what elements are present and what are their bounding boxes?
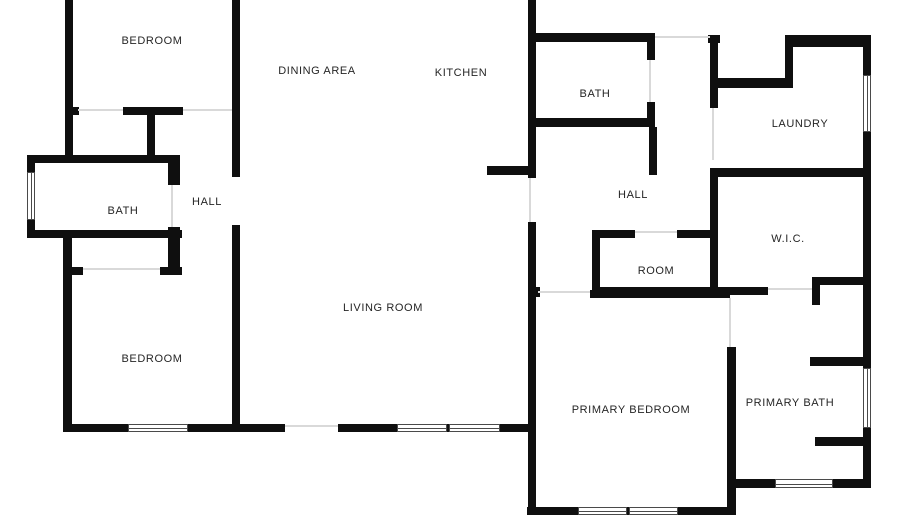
door-opening xyxy=(649,60,651,102)
wall-segment xyxy=(647,33,655,60)
wall-segment xyxy=(527,507,578,515)
room-label-living-room: LIVING ROOM xyxy=(343,302,423,314)
wall-segment xyxy=(810,357,863,366)
wall-segment xyxy=(168,163,180,185)
door-opening xyxy=(183,109,232,111)
wall-segment xyxy=(528,222,536,515)
room-label-w-i-c: W.I.C. xyxy=(771,233,805,245)
wall-segment xyxy=(833,479,871,488)
wall-segment xyxy=(63,235,72,432)
wall-segment xyxy=(160,267,182,275)
wall-segment xyxy=(528,0,536,178)
wall-segment xyxy=(27,155,180,163)
door-opening xyxy=(529,178,531,222)
wall-segment xyxy=(590,290,730,298)
wall-segment xyxy=(710,168,870,177)
room-label-bedroom: BEDROOM xyxy=(121,35,182,47)
room-label-laundry: LAUNDRY xyxy=(772,118,829,130)
wall-segment xyxy=(65,107,79,115)
wall-segment xyxy=(710,35,718,108)
wall-segment xyxy=(649,127,657,175)
door-opening xyxy=(655,36,710,38)
door-opening xyxy=(729,298,731,347)
room-label-dining-area: DINING AREA xyxy=(278,65,356,77)
room-label-bath: BATH xyxy=(580,88,611,100)
wall-segment xyxy=(338,424,397,432)
room-label-kitchen: KITCHEN xyxy=(435,67,487,79)
wall-segment xyxy=(815,437,871,446)
door-opening xyxy=(538,291,590,293)
wall-segment xyxy=(677,230,712,238)
living-room-window-1 xyxy=(397,424,447,432)
door-opening xyxy=(171,185,173,227)
wall-segment xyxy=(812,277,867,285)
living-room-window-2 xyxy=(449,424,500,432)
wall-segment xyxy=(718,78,793,88)
room-label-hall: HALL xyxy=(618,189,648,201)
door-opening xyxy=(635,231,677,233)
room-label-bath: BATH xyxy=(108,205,139,217)
door-opening xyxy=(768,288,812,290)
wall-segment xyxy=(863,35,871,75)
wall-segment xyxy=(147,107,155,157)
primary-bath-side-window xyxy=(863,368,871,428)
wall-segment xyxy=(727,347,736,515)
wall-segment xyxy=(678,507,736,515)
wall-segment xyxy=(65,0,73,158)
room-label-bedroom: BEDROOM xyxy=(121,353,182,365)
door-opening xyxy=(285,425,338,427)
primary-bedroom-window-1 xyxy=(578,507,627,515)
wall-segment xyxy=(592,230,600,295)
wall-segment xyxy=(232,0,240,177)
wall-segment xyxy=(736,479,775,488)
door-opening xyxy=(78,109,123,111)
room-label-hall: HALL xyxy=(192,196,222,208)
door-opening xyxy=(712,108,714,160)
wall-segment xyxy=(27,230,182,238)
room-label-primary-bedroom: PRIMARY BEDROOM xyxy=(572,404,691,416)
floor-plan-canvas: BEDROOMDINING AREAKITCHENBATHLAUNDRYHALL… xyxy=(0,0,900,529)
wall-segment xyxy=(528,118,655,127)
room-label-room: ROOM xyxy=(638,265,675,277)
wall-segment xyxy=(536,33,655,42)
wall-segment xyxy=(63,424,128,432)
laundry-window xyxy=(863,75,871,132)
wall-segment xyxy=(487,166,536,175)
wall-segment xyxy=(27,163,35,172)
bedroom2-window xyxy=(128,424,188,432)
wall-segment xyxy=(188,424,285,432)
room-label-primary-bath: PRIMARY BATH xyxy=(746,397,835,409)
wall-segment xyxy=(785,35,870,47)
primary-bedroom-window-2 xyxy=(629,507,678,515)
wall-segment xyxy=(232,225,240,432)
bath-left-window xyxy=(27,172,35,220)
door-opening xyxy=(83,268,160,270)
primary-bath-bottom-window xyxy=(775,479,833,488)
